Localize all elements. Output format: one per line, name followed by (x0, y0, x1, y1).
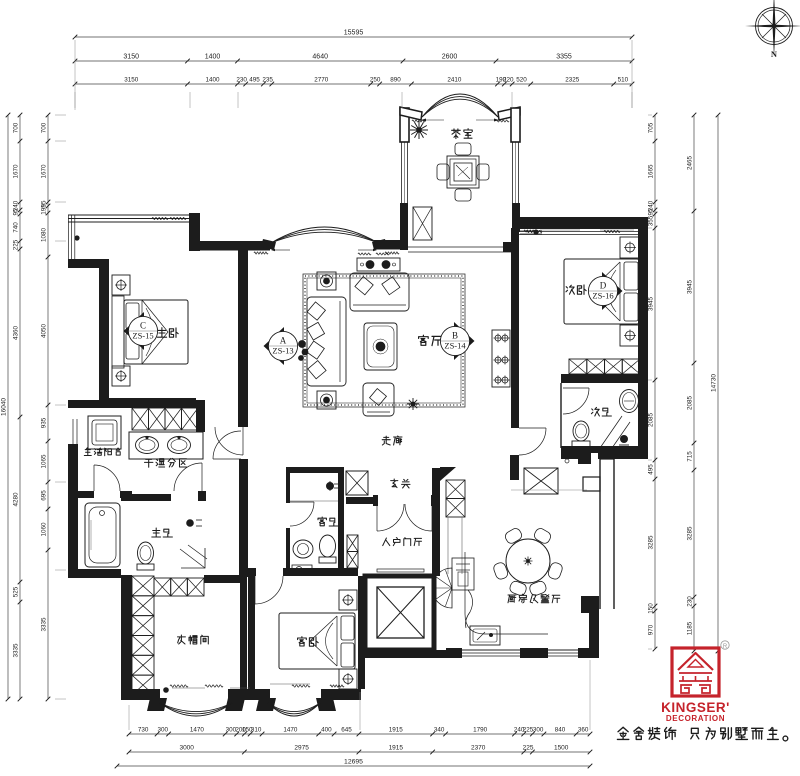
svg-text:ZS-14: ZS-14 (444, 341, 466, 351)
svg-text:525: 525 (13, 586, 20, 597)
svg-text:KINGSER': KINGSER' (661, 700, 730, 715)
svg-text:4050: 4050 (41, 324, 48, 339)
svg-text:B: B (452, 331, 458, 341)
svg-text:N: N (771, 49, 778, 59)
svg-text:495: 495 (249, 77, 260, 84)
svg-text:1065: 1065 (41, 454, 48, 469)
svg-text:3355: 3355 (556, 54, 572, 61)
svg-text:3285: 3285 (687, 526, 694, 541)
svg-text:1060: 1060 (41, 522, 48, 537)
svg-text:495: 495 (648, 464, 655, 475)
svg-text:250: 250 (370, 77, 381, 84)
svg-text:3945: 3945 (648, 297, 655, 312)
svg-text:2770: 2770 (314, 77, 329, 84)
svg-text:ZS-13: ZS-13 (272, 346, 293, 356)
svg-text:840: 840 (555, 727, 566, 734)
svg-text:715: 715 (687, 451, 694, 462)
svg-text:1400: 1400 (205, 54, 221, 61)
svg-text:1185: 1185 (687, 621, 694, 635)
svg-text:510: 510 (618, 77, 629, 84)
svg-text:1670: 1670 (13, 164, 20, 179)
svg-text:A: A (280, 336, 287, 346)
svg-text:ZS-16: ZS-16 (592, 291, 613, 301)
svg-text:1470: 1470 (190, 727, 205, 734)
svg-text:230: 230 (236, 77, 247, 84)
svg-text:195: 195 (41, 204, 48, 215)
svg-text:520: 520 (516, 77, 527, 84)
svg-text:890: 890 (390, 77, 401, 84)
svg-text:4640: 4640 (312, 54, 328, 61)
svg-text:4360: 4360 (13, 326, 20, 341)
svg-text:1500: 1500 (554, 745, 569, 752)
svg-text:400: 400 (321, 727, 332, 734)
svg-text:4280: 4280 (13, 492, 20, 507)
svg-text:3000: 3000 (179, 745, 194, 752)
svg-text:DECORATION: DECORATION (666, 714, 725, 723)
svg-text:225: 225 (13, 239, 20, 250)
svg-text:3150: 3150 (124, 77, 139, 84)
svg-text:2085: 2085 (687, 396, 694, 411)
svg-text:D: D (600, 281, 607, 291)
svg-text:2600: 2600 (442, 54, 458, 61)
svg-text:1790: 1790 (473, 727, 488, 734)
svg-text:705: 705 (648, 122, 655, 133)
svg-text:150: 150 (648, 603, 655, 614)
svg-text:340: 340 (434, 727, 445, 734)
svg-text:700: 700 (13, 122, 20, 133)
svg-text:355: 355 (648, 215, 655, 226)
svg-text:1470: 1470 (283, 727, 298, 734)
svg-text:14730: 14730 (711, 374, 718, 392)
svg-text:740: 740 (13, 222, 20, 233)
svg-text:645: 645 (341, 727, 352, 734)
svg-text:2410: 2410 (447, 77, 462, 84)
svg-text:230: 230 (687, 596, 694, 607)
svg-text:1080: 1080 (41, 228, 48, 243)
svg-text:225: 225 (523, 745, 534, 752)
svg-text:970: 970 (648, 624, 655, 635)
svg-text:3285: 3285 (648, 535, 655, 550)
svg-text:3150: 3150 (123, 54, 139, 61)
svg-text:12695: 12695 (344, 759, 363, 766)
svg-text:360: 360 (578, 727, 589, 734)
svg-text:1670: 1670 (41, 164, 48, 179)
svg-text:1400: 1400 (205, 77, 220, 84)
svg-text:15595: 15595 (344, 30, 364, 37)
svg-text:310: 310 (251, 727, 262, 734)
svg-text:R: R (723, 644, 728, 650)
svg-text:220: 220 (503, 77, 514, 84)
svg-text:95: 95 (648, 208, 655, 216)
svg-text:700: 700 (41, 122, 48, 133)
svg-text:300: 300 (533, 727, 544, 734)
svg-text:695: 695 (41, 490, 48, 501)
svg-text:ZS-15: ZS-15 (132, 331, 153, 341)
svg-text:3335: 3335 (13, 643, 20, 658)
svg-text:2085: 2085 (648, 413, 655, 428)
svg-text:1915: 1915 (389, 727, 404, 734)
svg-text:935: 935 (41, 417, 48, 428)
svg-text:2370: 2370 (471, 745, 486, 752)
svg-text:1915: 1915 (389, 745, 404, 752)
svg-text:3335: 3335 (41, 617, 48, 632)
svg-text:3945: 3945 (687, 280, 694, 295)
svg-text:2465: 2465 (687, 156, 694, 171)
svg-text:235: 235 (262, 77, 273, 84)
svg-text:95: 95 (13, 208, 20, 216)
svg-text:2325: 2325 (565, 77, 580, 84)
svg-text:16040: 16040 (1, 398, 8, 416)
svg-text:730: 730 (138, 727, 149, 734)
svg-text:C: C (140, 321, 146, 331)
svg-text:2975: 2975 (294, 745, 309, 752)
svg-text:1665: 1665 (648, 164, 655, 179)
svg-text:300: 300 (158, 727, 169, 734)
